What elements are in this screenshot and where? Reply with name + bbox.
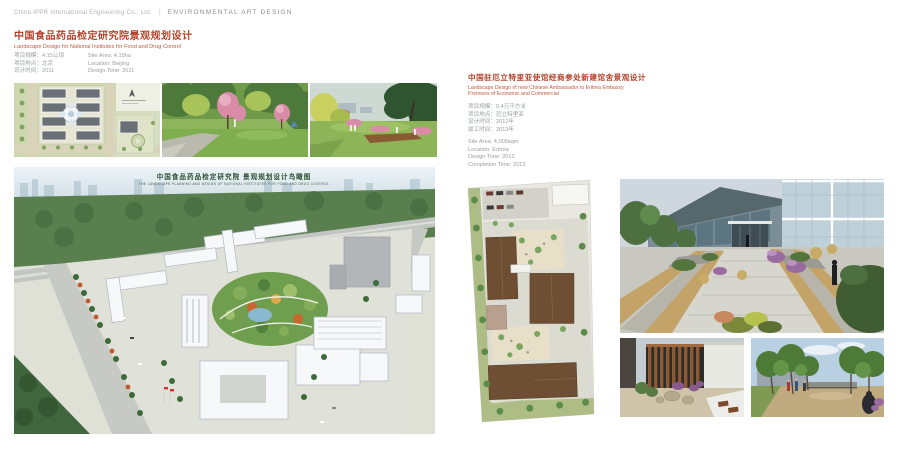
masterplan-image [14, 83, 160, 157]
left-project-title-en: Landscape Design for National Institutes… [14, 44, 193, 50]
info-line: 项目规模：4.15公顷 [14, 53, 64, 61]
left-project-title-zh: 中国食品药品检定研究院景观规划设计 [14, 27, 193, 42]
garden-render-image [162, 83, 308, 157]
info-line: Site Area: 4.15ha [88, 53, 134, 61]
campus-aerial-drawing [14, 167, 435, 434]
info-line: 竣工时间：2013年 [468, 127, 526, 135]
embassy-siteplan-image [462, 178, 608, 424]
masterplan-drawing [14, 83, 160, 157]
info-line: 项目规模：0.4万平方米 [468, 104, 526, 112]
courtyard-render-drawing [620, 338, 744, 417]
embassy-plaza-render-image [620, 179, 884, 333]
info-line: Site Area: 4,000sqm [468, 139, 526, 147]
left-project-info-en: Site Area: 4.15ha Location: Beijing Desi… [88, 53, 134, 76]
info-line: 设计时间：2012年 [468, 119, 526, 127]
embassy-plaza-render-drawing [620, 179, 884, 333]
campus-aerial-image [14, 167, 435, 434]
left-project-title-block: 中国食品药品检定研究院景观规划设计 Landscape Design for N… [14, 27, 193, 50]
embassy-siteplan-drawing [462, 178, 608, 424]
right-project-info-zh: 项目规模：0.4万平方米 项目地点：厄立特里亚 设计时间：2012年 竣工时间：… [468, 104, 526, 134]
portfolio-spread: China IPPR International Engineering Co.… [0, 0, 900, 450]
right-project-info-en: Site Area: 4,000sqm Location: Eritrea De… [468, 139, 526, 169]
page-header: China IPPR International Engineering Co.… [14, 9, 293, 16]
section-title: ENVIRONMENTAL ART DESIGN [168, 9, 293, 16]
company-name: China IPPR International Engineering Co.… [14, 10, 152, 16]
right-project-title-block: 中国驻厄立特里亚使馆经商参处新建馆舍景观设计 Landscape Design … [468, 72, 688, 98]
courtyard-render-image [620, 338, 744, 417]
park-render-drawing [310, 83, 437, 157]
park-render-image [310, 83, 437, 157]
info-line: Location: Beijing [88, 61, 134, 69]
allee-render-drawing [751, 338, 884, 417]
info-line: Design Time: 2012 [468, 154, 526, 162]
right-project-title-en: Landscape Design of new Chinese Ambassad… [468, 85, 688, 98]
allee-render-image [751, 338, 884, 417]
info-line: Design Time: 2011 [88, 68, 134, 76]
header-divider: | [159, 9, 161, 16]
left-project-info-zh: 项目规模：4.15公顷 项目地点：北京 设计时间：2011 [14, 53, 64, 76]
garden-render-drawing [162, 83, 308, 157]
title-en-line: Premises of Economic and Commercial [468, 91, 688, 97]
right-project-title-zh: 中国驻厄立特里亚使馆经商参处新建馆舍景观设计 [468, 72, 688, 83]
info-line: Completion Time: 2013 [468, 162, 526, 170]
info-line: 设计时间：2011 [14, 68, 64, 76]
info-line: Location: Eritrea [468, 147, 526, 155]
